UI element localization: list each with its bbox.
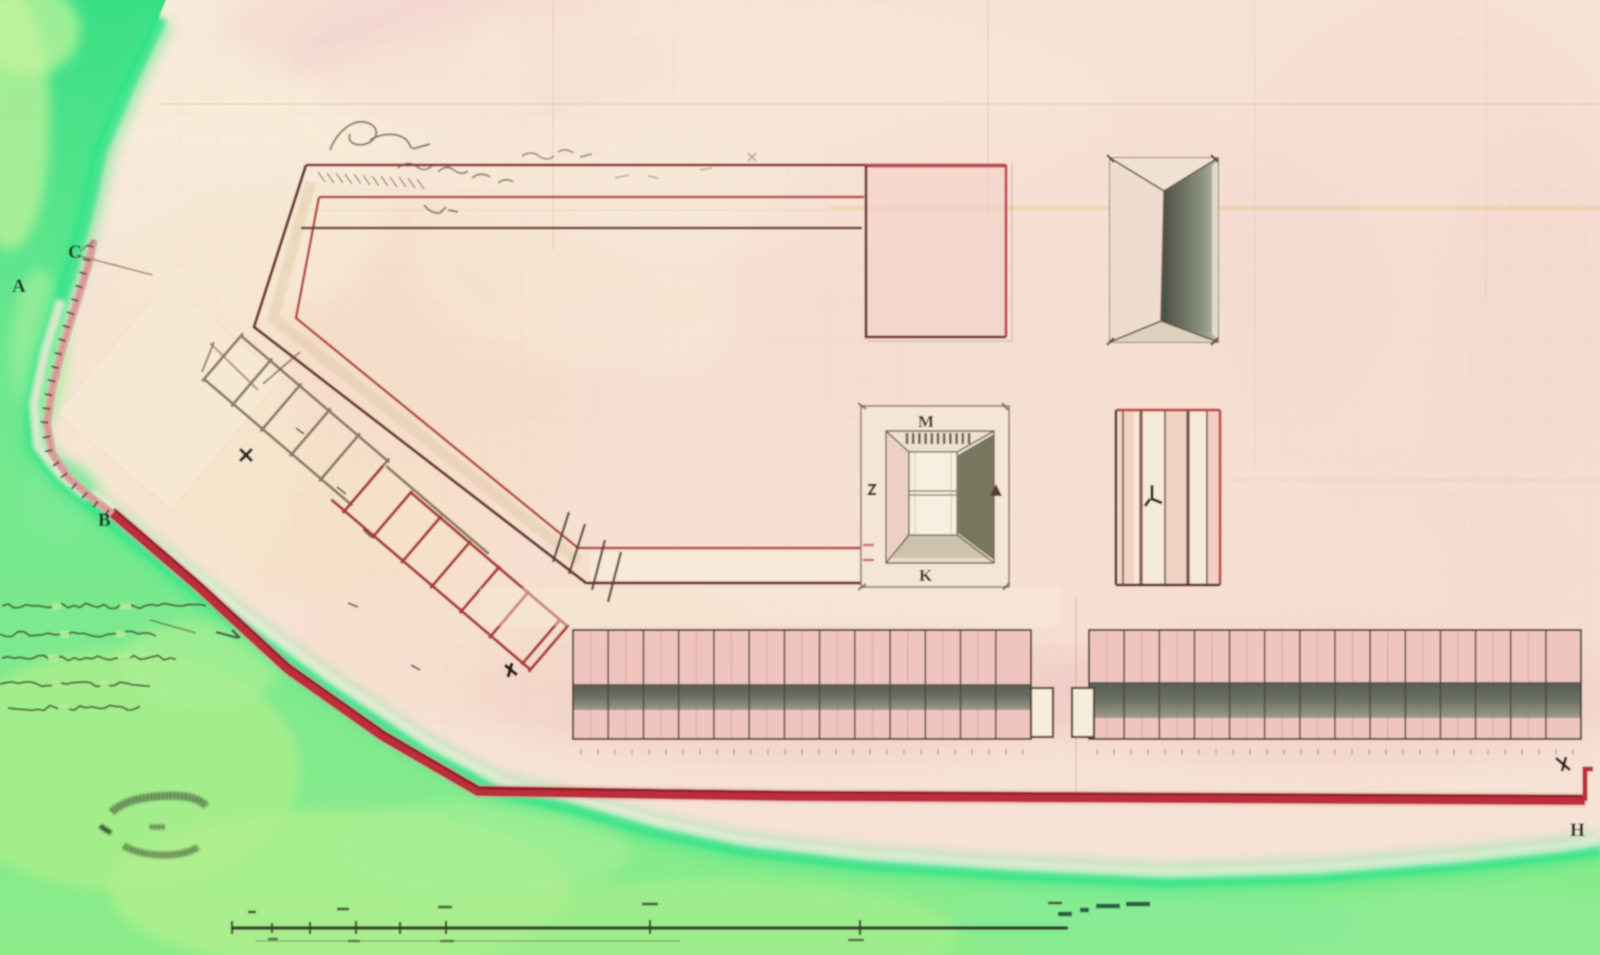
svg-text:A: A (12, 276, 26, 297)
svg-text:C: C (68, 242, 82, 263)
svg-text:K: K (919, 566, 933, 585)
svg-text:M: M (918, 412, 934, 431)
svg-text:B: B (98, 510, 111, 531)
svg-text:H: H (1570, 820, 1585, 841)
